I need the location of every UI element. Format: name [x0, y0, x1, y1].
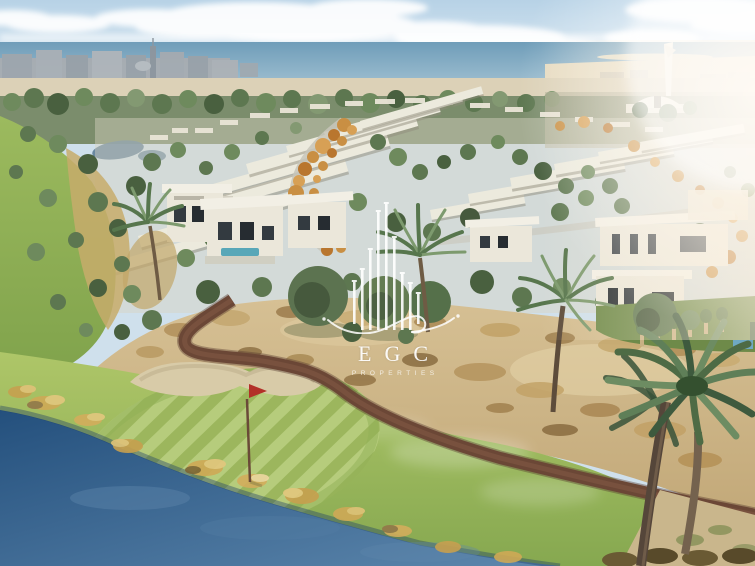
sun-glare — [518, 0, 755, 340]
villa-c — [283, 191, 353, 248]
villa-b — [200, 194, 292, 264]
villa-f — [465, 216, 539, 262]
swimming-pool — [221, 248, 259, 256]
tower — [150, 46, 156, 78]
landscape-illustration — [0, 0, 755, 566]
rendering-canvas: EGC PROPERTIES — [0, 0, 755, 566]
